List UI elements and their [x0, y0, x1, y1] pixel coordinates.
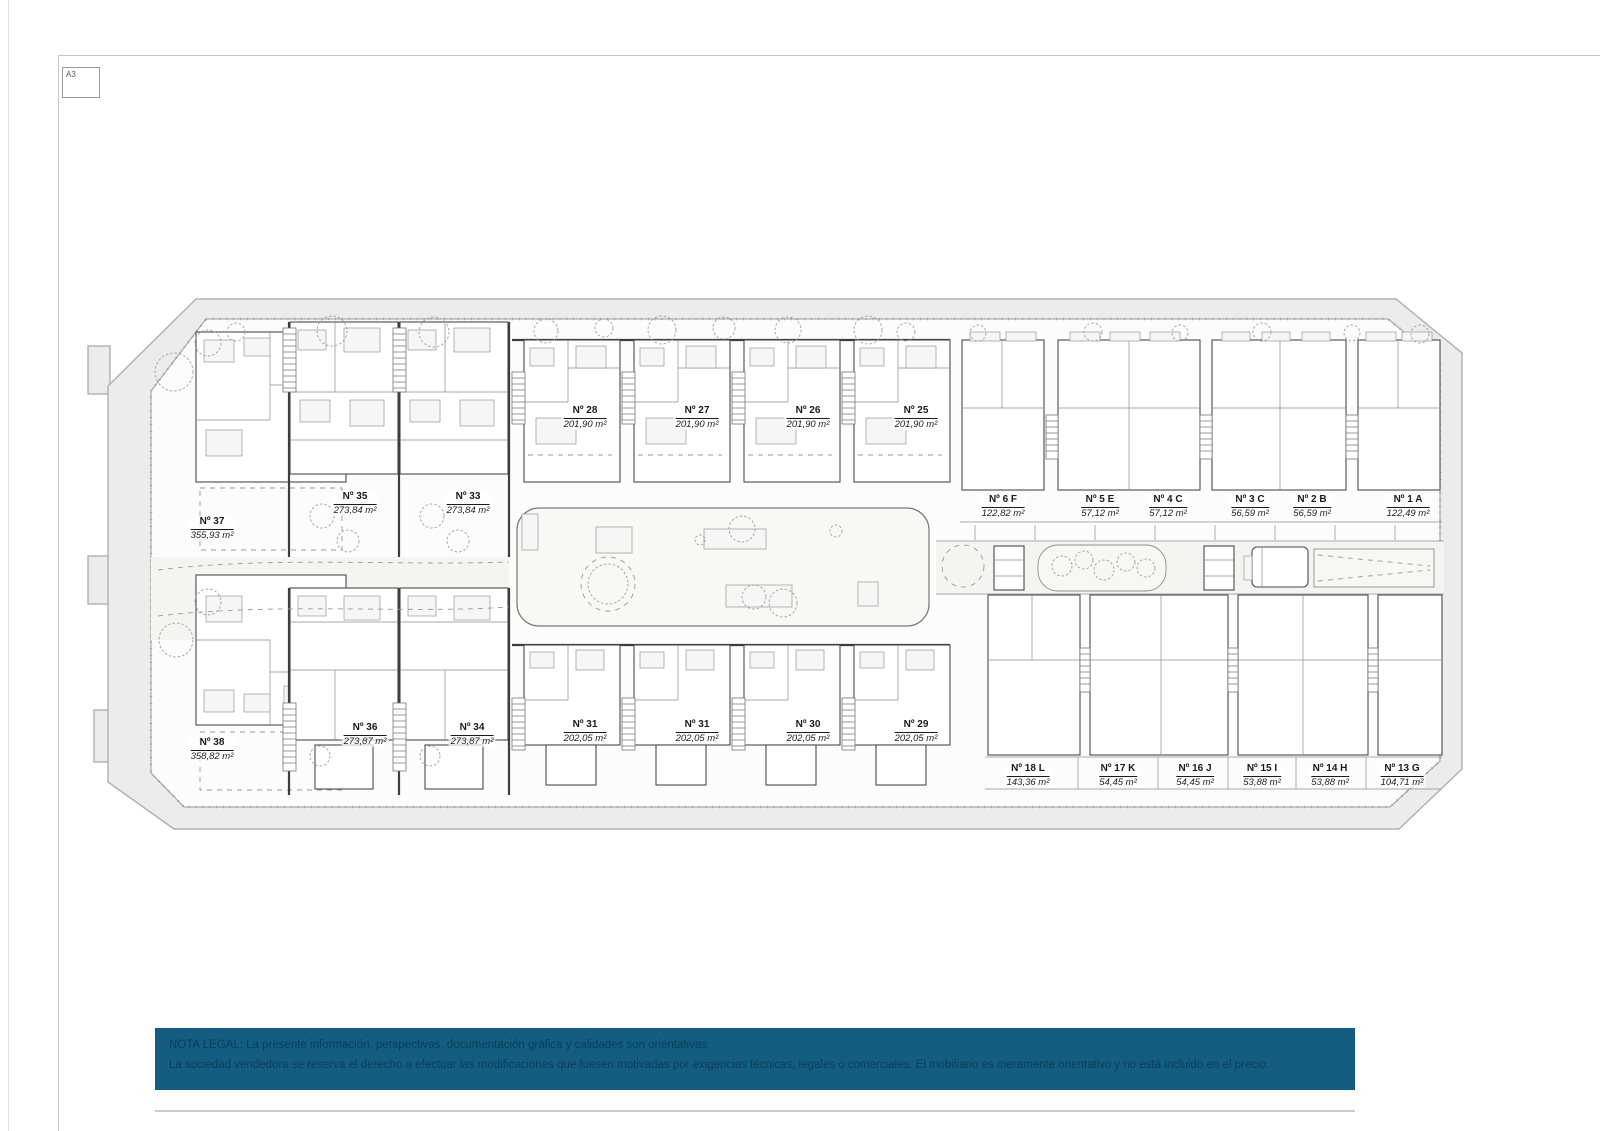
- unit-label: Nº 34 273,87 m²: [449, 722, 496, 747]
- unit-number: Nº 6 F: [982, 494, 1025, 508]
- unit-label: Nº 17 K 54,45 m²: [1097, 763, 1139, 788]
- unit-label: Nº 13 G 104,71 m²: [1379, 763, 1426, 788]
- unit-number: Nº 15 I: [1243, 763, 1281, 777]
- unit-area: 202,05 m²: [676, 733, 719, 744]
- unit-label: Nº 25 201,90 m²: [893, 405, 940, 430]
- unit-number: Nº 13 G: [1381, 763, 1424, 777]
- unit-label: Nº 2 B 56,59 m²: [1291, 494, 1333, 519]
- site-plan-drawing: [0, 0, 1600, 1131]
- unit-number: Nº 2 B: [1293, 494, 1331, 508]
- unit-label: Nº 38 358,82 m²: [189, 737, 236, 762]
- unit-area: 355,93 m²: [191, 530, 234, 541]
- unit-label: Nº 36 273,87 m²: [342, 722, 389, 747]
- unit-number: Nº 3 C: [1231, 494, 1269, 508]
- unit-label: Nº 4 C 57,12 m²: [1147, 494, 1189, 519]
- unit-area: 273,84 m²: [447, 505, 490, 516]
- legal-line-1: NOTA LEGAL: La presente información, per…: [169, 1038, 1341, 1054]
- unit-area: 104,71 m²: [1381, 777, 1424, 788]
- unit-number: Nº 4 C: [1149, 494, 1187, 508]
- unit-area: 56,59 m²: [1293, 508, 1331, 519]
- unit-number: Nº 5 E: [1081, 494, 1119, 508]
- unit-label: Nº 37 355,93 m²: [189, 516, 236, 541]
- unit-label: Nº 18 L 143,36 m²: [1005, 763, 1052, 788]
- unit-number: Nº 25: [895, 405, 938, 419]
- banner-underline-rule: [155, 1110, 1355, 1112]
- unit-area: 273,87 m²: [344, 736, 387, 747]
- unit-label: Nº 14 H 53,88 m²: [1309, 763, 1351, 788]
- unit-number: Nº 33: [447, 491, 490, 505]
- unit-area: 122,49 m²: [1387, 508, 1430, 519]
- unit-area: 273,84 m²: [334, 505, 377, 516]
- unit-number: Nº 18 L: [1007, 763, 1050, 777]
- road-planter: [1038, 545, 1166, 591]
- unit-label: Nº 31 202,05 m²: [674, 719, 721, 744]
- unit-label: Nº 30 202,05 m²: [785, 719, 832, 744]
- unit-area: 122,82 m²: [982, 508, 1025, 519]
- unit-area: 202,05 m²: [564, 733, 607, 744]
- unit-area: 201,90 m²: [895, 419, 938, 430]
- unit-number: Nº 16 J: [1176, 763, 1214, 777]
- plan-sheet: A3: [0, 0, 1600, 1131]
- unit-number: Nº 27: [676, 405, 719, 419]
- unit-number: Nº 30: [787, 719, 830, 733]
- unit-number: Nº 34: [451, 722, 494, 736]
- unit-area: 57,12 m²: [1081, 508, 1119, 519]
- unit-area: 57,12 m²: [1149, 508, 1187, 519]
- unit-number: Nº 36: [344, 722, 387, 736]
- unit-number: Nº 28: [564, 405, 607, 419]
- unit-number: Nº 29: [895, 719, 938, 733]
- unit-label: Nº 31 202,05 m²: [562, 719, 609, 744]
- unit-area: 273,87 m²: [451, 736, 494, 747]
- unit-label: Nº 33 273,84 m²: [445, 491, 492, 516]
- unit-label: Nº 1 A 122,49 m²: [1385, 494, 1432, 519]
- unit-area: 56,59 m²: [1231, 508, 1269, 519]
- unit-number: Nº 26: [787, 405, 830, 419]
- unit-label: Nº 27 201,90 m²: [674, 405, 721, 430]
- unit-label: Nº 35 273,84 m²: [332, 491, 379, 516]
- unit-label: Nº 6 F 122,82 m²: [980, 494, 1027, 519]
- unit-number: Nº 38: [191, 737, 234, 751]
- unit-label: Nº 29 202,05 m²: [893, 719, 940, 744]
- unit-area: 53,88 m²: [1243, 777, 1281, 788]
- unit-area: 202,05 m²: [895, 733, 938, 744]
- unit-label: Nº 28 201,90 m²: [562, 405, 609, 430]
- ramp: [1314, 549, 1434, 587]
- unit-label: Nº 3 C 56,59 m²: [1229, 494, 1271, 519]
- legal-line-2: La sociedad vendedora se reserva el dere…: [169, 1058, 1341, 1074]
- unit-number: Nº 31: [676, 719, 719, 733]
- unit-label: Nº 5 E 57,12 m²: [1079, 494, 1121, 519]
- legal-notice-banner: NOTA LEGAL: La presente información, per…: [155, 1028, 1355, 1090]
- unit-number: Nº 17 K: [1099, 763, 1137, 777]
- unit-area: 358,82 m²: [191, 751, 234, 762]
- unit-number: Nº 31: [564, 719, 607, 733]
- unit-number: Nº 1 A: [1387, 494, 1430, 508]
- unit-area: 201,90 m²: [676, 419, 719, 430]
- unit-area: 202,05 m²: [787, 733, 830, 744]
- unit-number: Nº 35: [334, 491, 377, 505]
- courtyard: [517, 508, 929, 626]
- unit-area: 54,45 m²: [1099, 777, 1137, 788]
- vehicle: [1244, 547, 1308, 587]
- unit-label: Nº 15 I 53,88 m²: [1241, 763, 1283, 788]
- unit-number: Nº 37: [191, 516, 234, 530]
- unit-area: 143,36 m²: [1007, 777, 1050, 788]
- unit-area: 201,90 m²: [787, 419, 830, 430]
- unit-label: Nº 26 201,90 m²: [785, 405, 832, 430]
- unit-label: Nº 16 J 54,45 m²: [1174, 763, 1216, 788]
- unit-area: 53,88 m²: [1311, 777, 1349, 788]
- unit-area: 54,45 m²: [1176, 777, 1214, 788]
- unit-area: 201,90 m²: [564, 419, 607, 430]
- unit-number: Nº 14 H: [1311, 763, 1349, 777]
